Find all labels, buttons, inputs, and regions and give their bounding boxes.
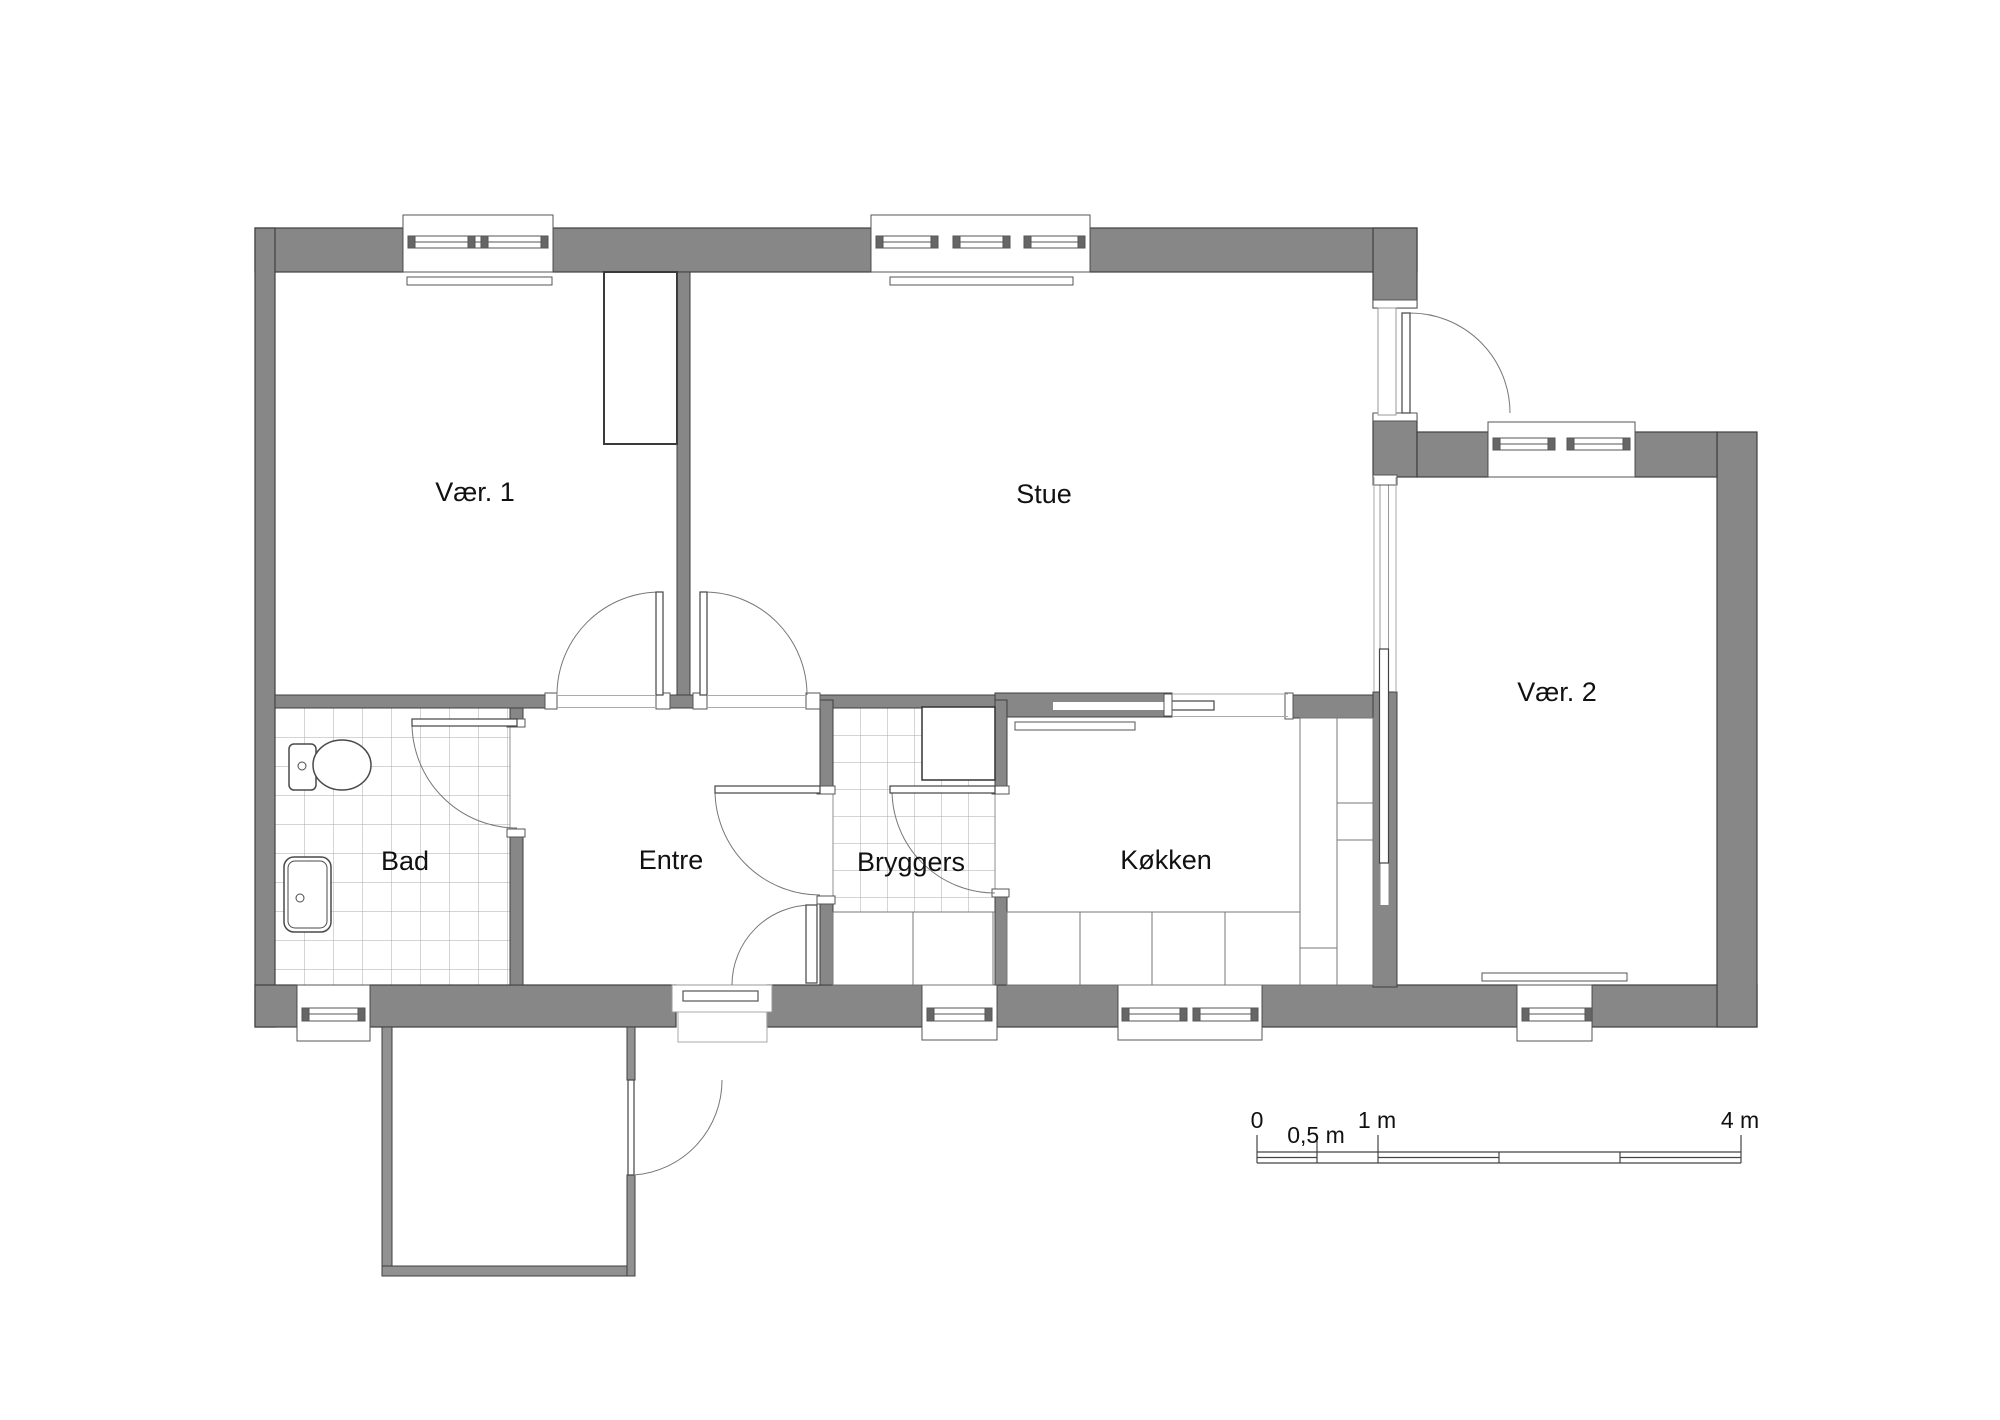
washing-machine (922, 707, 995, 780)
window-bathroom (297, 985, 370, 1041)
room-label-bedroom2: Vær. 2 (1517, 677, 1597, 707)
radiators (407, 277, 1627, 981)
door-leaf-utility (715, 786, 820, 793)
terrace-door-leaf (628, 1080, 634, 1175)
kitchen-tall-cabinets (1300, 718, 1373, 985)
scale-label-1m: 1 m (1358, 1107, 1396, 1133)
room-label-entre: Entre (639, 845, 704, 875)
room-label-bathroom: Bad (381, 846, 429, 876)
front-door-threshold (683, 991, 758, 1001)
front-door-leaf (806, 905, 817, 983)
scale-label-4m: 4 m (1721, 1107, 1759, 1133)
sliding-door-track (1380, 477, 1389, 651)
kitchen-pass-through (1053, 701, 1214, 710)
sliding-door-bedroom2 (1380, 477, 1389, 905)
room-label-bedroom1: Vær. 1 (435, 477, 515, 507)
window-kitchen (1118, 985, 1262, 1040)
kitchen-counter (1007, 912, 1300, 985)
window-bedroom2-north (1488, 422, 1635, 477)
scale-label-0: 0 (1251, 1107, 1264, 1133)
floor-plan-drawing: Vær. 1 Stue Vær. 2 Bad Entre Bryggers Kø… (0, 0, 2000, 1420)
door-leaf-kitchen (890, 786, 995, 793)
sliding-door-leaf-bedroom2 (1380, 649, 1389, 863)
terrace (382, 1027, 722, 1276)
bathtub (284, 857, 331, 932)
entrance-door-leaf (1402, 313, 1410, 413)
window-bedroom2-south (1517, 985, 1592, 1041)
wardrobe-bedroom1 (604, 272, 677, 444)
scale-bar-labels: 0 0,5 m 1 m 4 m (1251, 1107, 1760, 1148)
door-leaf-bathroom (412, 719, 517, 726)
scale-label-05: 0,5 m (1287, 1122, 1345, 1148)
utility-cabinets (833, 912, 993, 985)
toilet (289, 740, 371, 790)
radiator-bedroom2 (1482, 973, 1627, 981)
radiator-living-room (890, 277, 1073, 285)
radiator-bedroom1 (407, 277, 552, 285)
room-label-kitchen: Køkken (1120, 845, 1212, 875)
sliding-door-leaf-kitchen (1170, 701, 1214, 710)
door-leaf-bedroom1 (656, 592, 663, 695)
window-bedroom1 (403, 215, 553, 272)
door-leaf-living-room (700, 592, 707, 695)
floor-plan: Vær. 1 Stue Vær. 2 Bad Entre Bryggers Kø… (0, 0, 2000, 1420)
entrance-door-frame (1378, 308, 1396, 415)
window-utility (922, 985, 997, 1040)
radiator-kitchen (1015, 722, 1135, 730)
window-living-room (871, 215, 1090, 272)
room-label-living: Stue (1016, 479, 1072, 509)
room-label-utility: Bryggers (857, 847, 965, 877)
